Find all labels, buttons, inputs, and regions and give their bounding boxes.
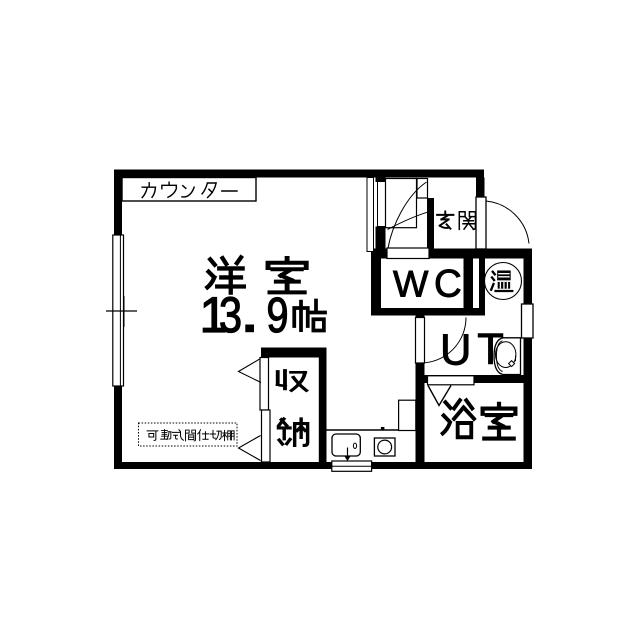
svg-text:9: 9 (267, 288, 289, 343)
svg-text:W: W (393, 263, 429, 305)
svg-text:U: U (440, 327, 471, 375)
svg-text:3: 3 (219, 287, 242, 343)
svg-text:C: C (434, 263, 462, 306)
